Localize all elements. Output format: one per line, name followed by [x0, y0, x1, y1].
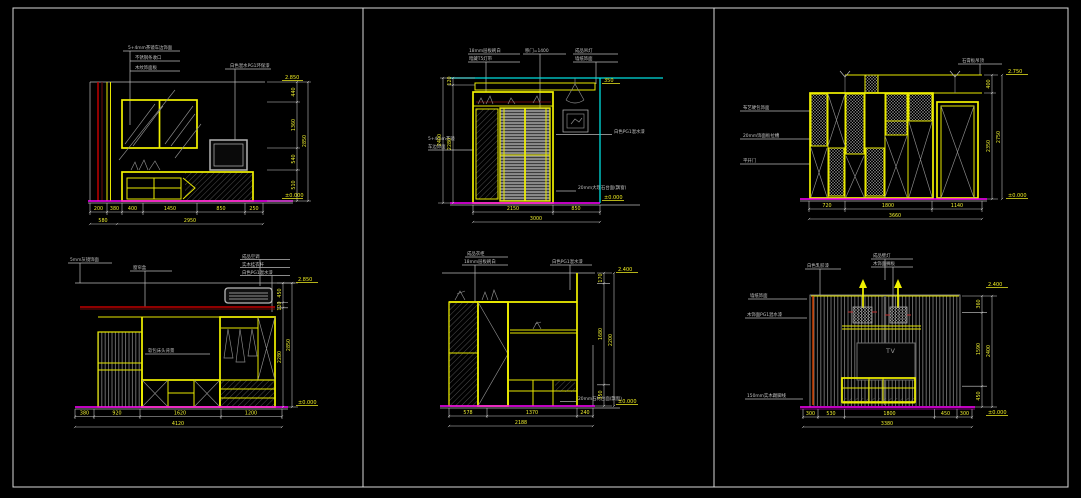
annotation-label: 5mm灰镜饰面 [70, 256, 100, 263]
dim-label: 540 [291, 154, 297, 163]
annotation-label: 20mm饰面板拉槽 [743, 132, 780, 139]
wardrobe [473, 92, 553, 203]
tv-label: TV [885, 347, 895, 355]
dim-label: 400 [986, 79, 992, 88]
tv-set: TV [857, 343, 915, 380]
dim-label: 1680 [598, 328, 604, 340]
dimensions-bottom: 2150 850 3000 [473, 205, 600, 222]
curtain [98, 82, 111, 201]
dim-label: 720 [822, 203, 831, 209]
dim-label: 1800 [883, 411, 895, 417]
dim-label: 170 [598, 273, 604, 282]
dim-label: 360 [976, 299, 982, 308]
dimensions-bottom: 720 1800 1140 3660 [809, 201, 982, 219]
dim-label: 4120 [172, 421, 184, 427]
dim-label: 2400 [986, 345, 992, 357]
dim-label: 850 [571, 206, 580, 212]
elevation-bottom-left: 5mm灰镜饰面 窗帘盒 成品空调 实木挂衣杆 白色PG1混水漆 软包床头背景 [68, 253, 318, 427]
dim-label: 2188 [515, 420, 527, 426]
annotation-label: 木纹饰面板 [135, 64, 158, 71]
decor-items [131, 160, 160, 170]
annotation-label: 18mm层板刷白 [464, 258, 496, 265]
window-cabinet [119, 90, 201, 160]
annotation-label: 成品衣柜 [467, 250, 485, 257]
dim-label: 2400 [437, 134, 443, 146]
annotation-label: 不锈钢条收口 [135, 54, 161, 61]
dimensions-bottom: 578 1370 240 2188 [449, 408, 593, 426]
headboard-slats [98, 317, 142, 407]
dim-label: 300 [960, 411, 969, 417]
dim-label: 1590 [976, 343, 982, 355]
dimensions-bottom: 300 530 1800 450 300 3380 [803, 409, 972, 427]
dim-label: 530 [826, 411, 835, 417]
dim-label: 1140 [951, 203, 963, 209]
sheet-border [13, 8, 1068, 487]
dim-label: 1360 [291, 119, 297, 131]
annotation-label: 石膏板吊顶 [962, 57, 985, 64]
dim-label: 250 [249, 206, 258, 212]
picture-frame [563, 110, 588, 132]
ceiling-band [840, 71, 982, 93]
dim-label: 510 [291, 180, 297, 189]
dim-label: 3000 [530, 216, 542, 222]
decor-vases [455, 290, 498, 300]
elevation-marks: 2.400 ±0.000 [616, 267, 638, 405]
dimensions-right: 360 1590 450 2400 [962, 296, 997, 407]
dim-label: 1370 [526, 410, 538, 416]
elevation-marks: 2.750 ±0.000 [1006, 69, 1028, 199]
dim-label: 2350 [986, 140, 992, 152]
dimensions-right: 450 120 2280 2850 [277, 283, 298, 407]
annotation-label: 白色PG1混水漆 [242, 269, 273, 276]
dimensions-left: 120 2280 2400 [437, 76, 475, 203]
elevation-marks: 2.850 ±0.000 [296, 277, 318, 406]
low-cabinet [122, 172, 253, 201]
annotation-label: 软包床头背景 [148, 347, 175, 354]
dim-label: 200 [94, 206, 103, 212]
annotation-label: 窗帘盒 [133, 264, 147, 271]
tv-set [210, 140, 247, 170]
dim-label: 450 [976, 391, 982, 400]
dim-label: 120 [277, 301, 283, 310]
annotation-label: 150mm实木踢脚线 [747, 392, 786, 399]
ceiling-band [475, 83, 595, 90]
dimensions-right: 170 1680 350 2200 [595, 273, 614, 406]
dim-label: 3380 [881, 421, 893, 427]
annotation-label: 成品壁灯 [873, 252, 891, 259]
cabinet [449, 273, 593, 406]
dim-label: 2280 [277, 351, 283, 363]
annotation-label: 白色PG1混水漆 [614, 128, 645, 135]
dim-label: 850 [216, 206, 225, 212]
annotation-label: 平开门 [743, 157, 756, 164]
annotation-label: 20mm大理石台面(飘窗) [578, 184, 627, 191]
dim-label: 1450 [164, 206, 176, 212]
elevation-marks: 350 ±0.000 [602, 78, 624, 201]
dimensions-right: 440 1360 540 510 2850 [267, 82, 311, 201]
cabinet-grid [810, 93, 933, 198]
annotation-label: 成品吊灯 [575, 47, 593, 54]
annotation-label: 成品空调 [242, 253, 260, 260]
annotation-label: 白色乳胶漆 [807, 262, 830, 269]
dim-label: 1200 [245, 411, 257, 417]
air-conditioner [225, 288, 272, 303]
dimensions-bottom: 200 380 400 1450 850 250 580 2950 [90, 203, 263, 224]
annotation-label: 5+4mm茶镜车边饰面 [128, 44, 173, 51]
annotation-label: 18mm层板刷白 [469, 47, 501, 54]
dim-label: 1800 [882, 203, 894, 209]
dimensions-right: 400 2350 2750 [984, 75, 1002, 199]
dim-label: 580 [98, 218, 107, 224]
annotation-label: 木饰面搁板 [873, 260, 896, 267]
dim-label: 240 [580, 410, 589, 416]
annotation-label: 墙纸饰面 [575, 55, 593, 62]
annotation-label: 布艺硬包饰面 [743, 104, 770, 111]
annotation-label: 移门=1400 [525, 47, 549, 54]
dim-label: 450 [277, 288, 283, 297]
annotation-label: 白色PG1混水漆 [552, 258, 583, 265]
annotation-label: 实木挂衣杆 [242, 261, 265, 268]
dim-label: 3660 [889, 213, 901, 219]
annotation-label: 墙纸饰面 [750, 292, 768, 299]
elevation-top-middle: 18mm层板刷白 暗藏T5灯带 移门=1400 成品吊灯 墙纸饰面 5+4mm茶… [428, 47, 663, 222]
cad-sheet: 5+4mm茶镜车边饰面 不锈钢条收口 木纹饰面板 白色混水PG1环保漆 [0, 0, 1081, 498]
dim-label: 2850 [286, 339, 292, 351]
dim-label: 1620 [174, 411, 186, 417]
dim-label: 440 [291, 87, 297, 96]
dim-label: 120 [447, 76, 453, 85]
dimensions-bottom: 380 920 1620 1200 4120 [75, 409, 282, 427]
dim-label: 2150 [507, 206, 519, 212]
dim-label: 450 [941, 411, 950, 417]
cad-canvas: 5+4mm茶镜车边饰面 不锈钢条收口 木纹饰面板 白色混水PG1环保漆 [0, 0, 1081, 498]
dim-label: 578 [463, 410, 472, 416]
annotation-label: 木饰面PG1混水漆 [747, 311, 783, 318]
dim-label: 2200 [608, 334, 614, 346]
dim-label: 300 [806, 411, 815, 417]
door [937, 102, 978, 198]
dim-label: 380 [80, 411, 89, 417]
dim-label: 2280 [447, 138, 453, 150]
dim-label: 350 [598, 390, 604, 399]
elevation-top-right: 石膏板吊顶 布艺硬包饰面 20mm饰面板拉槽 平开门 [740, 57, 1028, 219]
dim-label: 380 [110, 206, 119, 212]
annotation-label: 白色混水PG1环保漆 [230, 62, 270, 69]
dim-label: 920 [112, 411, 121, 417]
annotation-label: 暗藏T5灯带 [469, 55, 493, 62]
dim-label: 2950 [184, 218, 196, 224]
dim-label: 2750 [996, 131, 1002, 143]
wardrobe [220, 317, 275, 407]
elevation-bottom-right: 白色乳胶漆 成品壁灯 木饰面搁板 墙纸饰面 木饰面PG1混水漆 150mm实木踢… [745, 252, 1008, 427]
elevation-bottom-middle: 成品衣柜 18mm层板刷白 白色PG1混水漆 20mm石材台面(飘窗) [440, 250, 638, 426]
dim-label: 400 [128, 206, 137, 212]
elevation-top-left: 5+4mm茶镜车边饰面 不锈钢条收口 木纹饰面板 白色混水PG1环保漆 [88, 44, 311, 224]
bed-cabinet [142, 380, 220, 407]
dim-label: 2850 [302, 135, 308, 147]
